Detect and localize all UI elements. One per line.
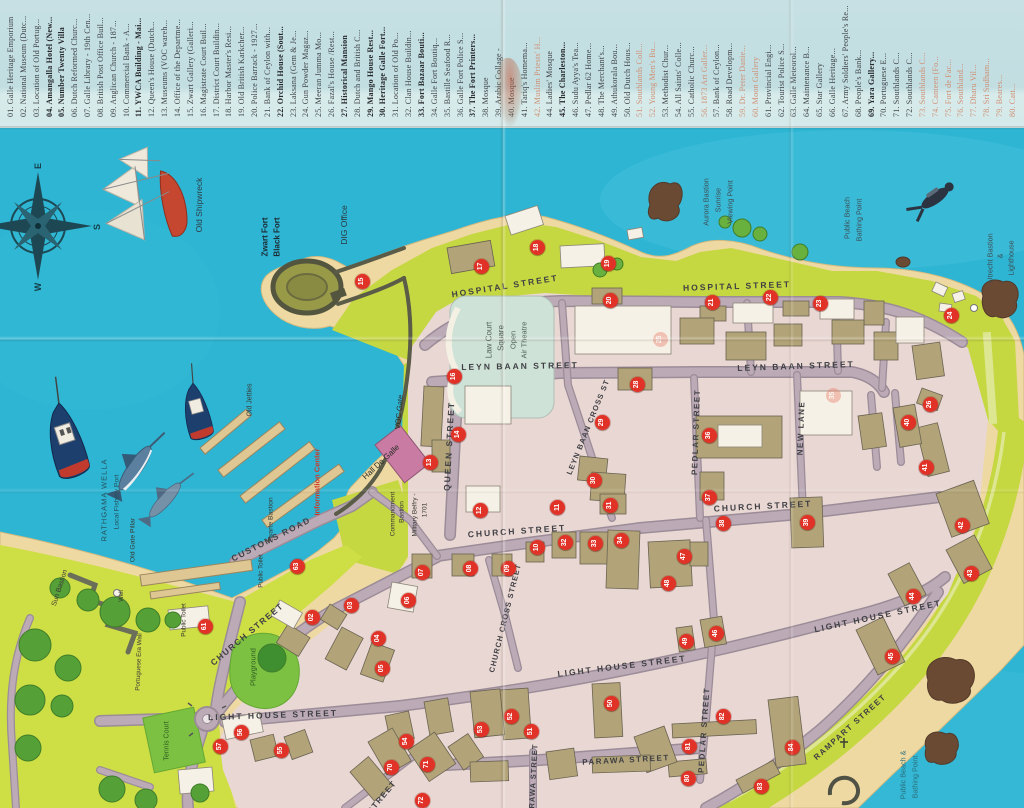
legend-item: 04. Amangalla Hotel (New... <box>44 0 57 117</box>
legend-item: 14. Office of the Departme... <box>172 0 185 117</box>
legend-item: 44. Ladies' Mosque <box>544 0 557 117</box>
legend-item: 01. Galle Heritage Emporium <box>5 0 18 117</box>
legend-item: 38. Mosque <box>480 0 493 117</box>
legend-item: 18. Harbor Master's Resi... <box>223 0 236 117</box>
legend-item: 26. Fazal's House /Rest... <box>326 0 339 117</box>
legend-item: 64. Maintenance B... <box>801 0 814 117</box>
legend-item: 68. People's Bank... <box>853 0 866 117</box>
legend-item: 59. Dr. Peter Danie... <box>737 0 750 117</box>
legend-item: 06. Dutch Reformed Churc... <box>69 0 82 117</box>
legend-item: 05. Number Twenty Villa <box>56 0 69 117</box>
legend-item: 61. Provincial Engi... <box>763 0 776 117</box>
legend-item: 73. Southlands C... <box>917 0 930 117</box>
legend-item: 50. Old Dutch Hous... <box>622 0 635 117</box>
legend-item: 21. Bank of Ceylon with... <box>262 0 275 117</box>
legend-item: 15. Zwart Gallery (Galleri... <box>185 0 198 117</box>
legend-item: 27. Historical Mansion <box>339 0 352 117</box>
legend-item: 79. Beares... <box>994 0 1007 117</box>
legend-item: 10. Commercial Bank - A... <box>121 0 134 117</box>
legend-item: 46. Sudu Ayya's Tea... <box>570 0 583 117</box>
legend-item: 52. Young Men's Bu... <box>647 0 660 117</box>
legend-item: 23. Laksana (Gem & Je... <box>288 0 301 117</box>
map-illustration <box>0 128 1024 808</box>
lighthouse-icon <box>971 305 978 312</box>
legend-item: 22. Orchid House (Sout... <box>275 0 288 117</box>
legend-item: 67. Army Soldiers' People's Re... <box>840 0 853 117</box>
legend-item: 66. Galle Heritage... <box>827 0 840 117</box>
legend-item: 32. Clan House Buildin... <box>403 0 416 117</box>
legend-item: 28. Dutch and British C... <box>352 0 365 117</box>
legend-item: 71. Southlands C... <box>891 0 904 117</box>
legend-item: 78. Sri Sudham... <box>981 0 994 117</box>
legend-item: 49. Athukorala Bou... <box>609 0 622 117</box>
legend-item: 47. Pedlar 62 Home... <box>583 0 596 117</box>
legend-item: 57. Bank of Ceylon... <box>711 0 724 117</box>
legend-item: 77. Dharu Vil... <box>968 0 981 117</box>
legend-item: 75. Fort de Fac... <box>943 0 956 117</box>
legend-item: 25. Meeran Jumma Mo... <box>313 0 326 117</box>
legend-item: 24. Gun Powder Magaz... <box>300 0 313 117</box>
legend-item: 17. District Court Buildin... <box>211 0 224 117</box>
legend-item: 51. Southlands Coll... <box>634 0 647 117</box>
legend-item: 34. Galle Fort Boutiq... <box>429 0 442 117</box>
legend-item: 56. 1873 Art Galler... <box>699 0 712 117</box>
legend-item: 45. The Charleston... <box>557 0 570 117</box>
legend-item: 58. Road Developm... <box>724 0 737 117</box>
legend-item: 63. Galle Meteorol... <box>788 0 801 117</box>
legend-item: 72. Southlands C... <box>904 0 917 117</box>
legend-item: 09. Anglican Church - 187... <box>108 0 121 117</box>
legend-item: 08. British Post Office Buil... <box>95 0 108 117</box>
legend-item: 29. Mango House Rest... <box>365 0 378 117</box>
legend-item: 55. Catholic Churc... <box>686 0 699 117</box>
legend-item: 80. Catt... <box>1007 0 1020 117</box>
legend-item: 65. Star Gallery <box>814 0 827 117</box>
legend-item: 12. Queen's House (Dutch... <box>146 0 159 117</box>
legend-item: 33. Fort Bazaar Bouti... <box>416 0 429 117</box>
legend-item: 20. Police Barrack - 1927... <box>249 0 262 117</box>
legend-item: 54. All Saints' Colle... <box>673 0 686 117</box>
legend-item: 03. Location of Old Portug... <box>31 0 44 117</box>
legend-fold-edge <box>0 126 1024 130</box>
legend-item: 42. Muslim Priests' H... <box>532 0 545 117</box>
legend-item: 16. Magistrate Court Buil... <box>198 0 211 117</box>
legend-item: 31. Location of Old Po... <box>390 0 403 117</box>
legend-item: 19. Old British Karkcher... <box>236 0 249 117</box>
legend-item: 48. The Merchant's... <box>596 0 609 117</box>
legend-item: 07. Galle Library - 19th Cen... <box>82 0 95 117</box>
legend-item: 13. Museums (VOC wareh... <box>159 0 172 117</box>
legend-item: 11. YWCA Building - Mai... <box>133 0 146 117</box>
legend-item: 53. Methodist Chur... <box>660 0 673 117</box>
legend-item: 36. Galle Fort Police S... <box>455 0 468 117</box>
legend-item: 37. The Fort Printers... <box>467 0 480 117</box>
folded-paper-map-photo: 01. Galle Heritage Emporium02. National … <box>0 0 1024 808</box>
well-icon <box>114 590 121 597</box>
legend-item: 30. Heritage Galle Fort... <box>377 0 390 117</box>
legend-item: 69. Yara Gallery... <box>866 0 879 117</box>
legend-item: 70. Portuguese E... <box>878 0 891 117</box>
legend-item: 62. Tourist Police S... <box>776 0 789 117</box>
legend-item: 74. Canteen (Fo... <box>930 0 943 117</box>
legend-item: 76. Southland... <box>955 0 968 117</box>
legend-item: 35. Bastille Seafood R... <box>442 0 455 117</box>
legend-item: 02. National Museum (Dutc... <box>18 0 31 117</box>
legend-item: 60. Moon Gallery <box>750 0 763 117</box>
